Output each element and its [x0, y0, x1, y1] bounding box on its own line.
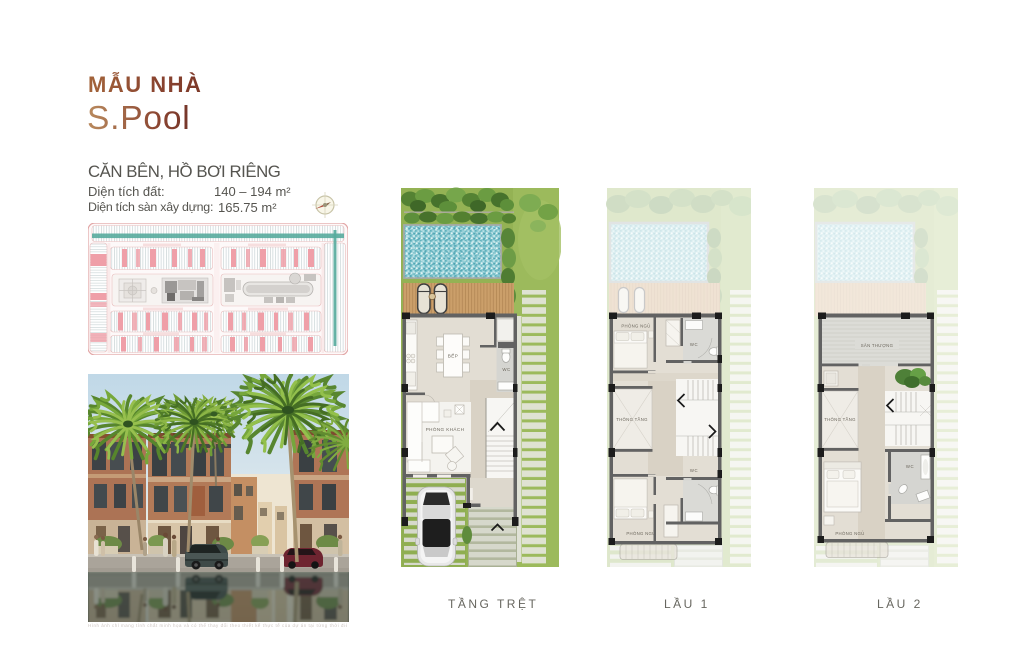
svg-text:PHÒNG NGỦ: PHÒNG NGỦ	[835, 531, 864, 536]
svg-text:WC: WC	[690, 342, 698, 347]
svg-text:BẾP: BẾP	[448, 353, 458, 359]
svg-text:SÂN THƯỢNG: SÂN THƯỢNG	[861, 343, 894, 348]
svg-text:WC: WC	[690, 468, 698, 473]
svg-text:THÔNG TẦNG: THÔNG TẦNG	[824, 417, 856, 422]
svg-text:PHÒNG NGỦ: PHÒNG NGỦ	[626, 531, 655, 536]
svg-text:PHÒNG NGỦ: PHÒNG NGỦ	[621, 324, 650, 329]
svg-text:WC: WC	[502, 367, 510, 372]
svg-text:WC: WC	[906, 464, 914, 469]
svg-text:PHÒNG KHÁCH: PHÒNG KHÁCH	[426, 426, 465, 432]
svg-text:THÔNG TẦNG: THÔNG TẦNG	[616, 417, 648, 422]
